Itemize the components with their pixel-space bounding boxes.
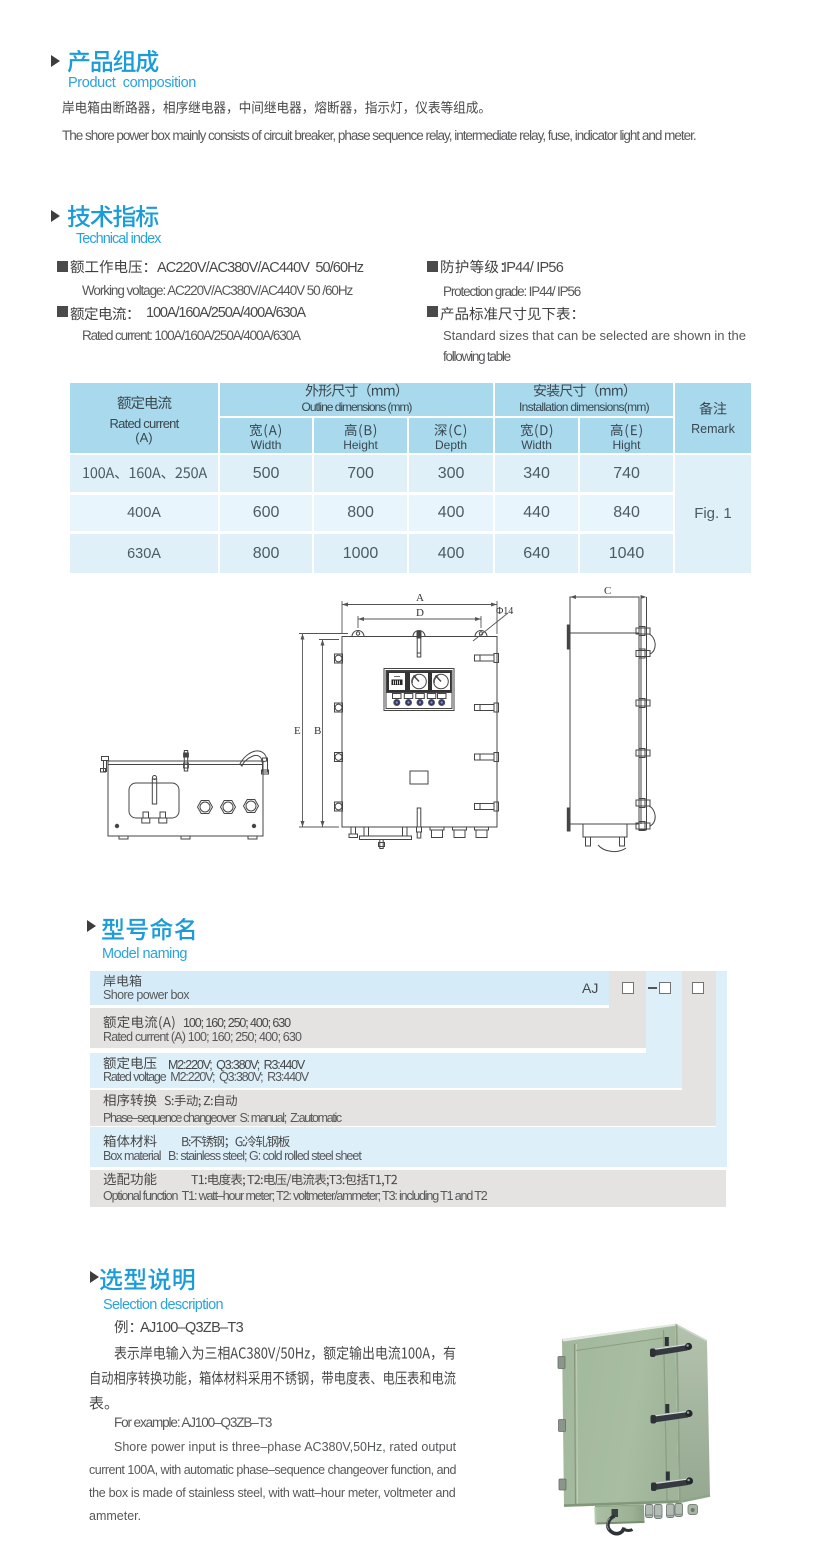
svg-text:Φ14: Φ14 xyxy=(496,606,513,617)
svg-text:D: D xyxy=(416,607,424,619)
svg-text:E: E xyxy=(294,725,301,737)
svg-text:B: B xyxy=(314,725,321,737)
svg-text:A: A xyxy=(416,592,424,604)
svg-text:C: C xyxy=(604,585,611,597)
